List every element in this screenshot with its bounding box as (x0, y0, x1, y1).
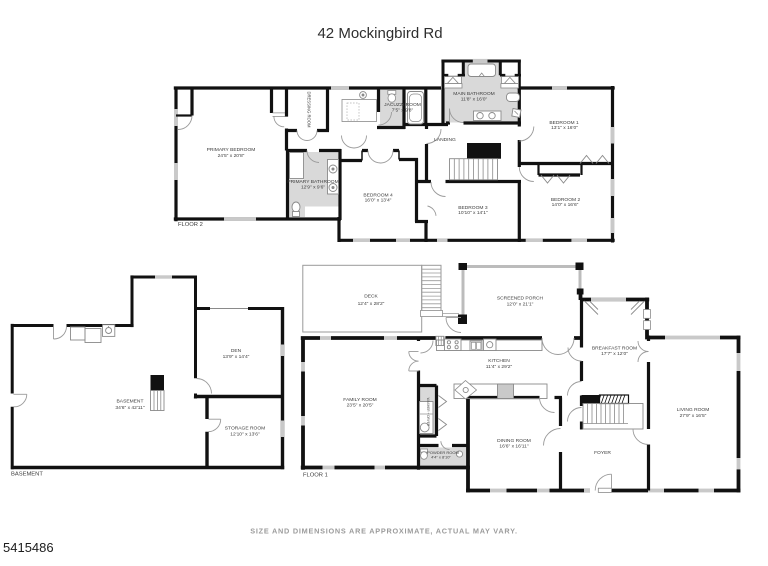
svg-text:14'0" x 16'6": 14'0" x 16'6" (552, 202, 579, 208)
svg-text:WASHER + DRYER: WASHER + DRYER (426, 398, 430, 427)
svg-text:FOYER: FOYER (594, 450, 611, 456)
svg-text:12'4" x 28'2": 12'4" x 28'2" (358, 301, 385, 307)
svg-text:BASEMENT: BASEMENT (11, 472, 43, 478)
svg-text:13'1" x 16'0": 13'1" x 16'0" (551, 125, 578, 131)
svg-text:PRIMARY BEDROOM: PRIMARY BEDROOM (207, 147, 256, 153)
svg-text:BEDROOM 2: BEDROOM 2 (551, 197, 581, 203)
svg-text:16'6" x 16'11": 16'6" x 16'11" (499, 443, 528, 449)
svg-text:12'0" x 21'1": 12'0" x 21'1" (507, 302, 534, 308)
svg-text:MAIN BATHROOM: MAIN BATHROOM (453, 91, 494, 97)
svg-text:DINING ROOM: DINING ROOM (497, 438, 531, 444)
svg-text:JACUZZI ROOM: JACUZZI ROOM (384, 102, 421, 108)
svg-text:27'9" x 16'5": 27'9" x 16'5" (680, 413, 707, 419)
svg-text:42 Mockingbird Rd: 42 Mockingbird Rd (317, 25, 442, 42)
svg-text:DRESSING ROOM: DRESSING ROOM (306, 91, 311, 128)
svg-text:KITCHEN: KITCHEN (488, 358, 510, 364)
svg-text:BEDROOM 3: BEDROOM 3 (458, 205, 488, 211)
svg-text:5415486: 5415486 (3, 540, 54, 555)
svg-text:34'6" x 42'11": 34'6" x 42'11" (115, 405, 144, 411)
svg-text:12'9" x 9'6": 12'9" x 9'6" (301, 184, 325, 190)
svg-text:BEDROOM 4: BEDROOM 4 (363, 192, 393, 198)
svg-text:FLOOR 1: FLOOR 1 (303, 473, 328, 479)
svg-text:DEN: DEN (231, 348, 242, 354)
svg-text:23'5" x 20'5": 23'5" x 20'5" (347, 403, 374, 409)
svg-text:BEDROOM 1: BEDROOM 1 (549, 120, 579, 126)
svg-text:SIZE AND DIMENSIONS ARE APPROX: SIZE AND DIMENSIONS ARE APPROXIMATE, ACT… (250, 527, 517, 536)
svg-text:12'10" x 13'6": 12'10" x 13'6" (230, 432, 260, 438)
svg-text:10'10" x 14'1": 10'10" x 14'1" (458, 210, 488, 216)
svg-text:17'7" x 12'0": 17'7" x 12'0" (601, 351, 628, 357)
svg-text:7'5" x 9'8": 7'5" x 9'8" (392, 108, 414, 114)
svg-text:STORAGE ROOM: STORAGE ROOM (225, 426, 265, 432)
svg-text:PRIMARY BATHROOM: PRIMARY BATHROOM (287, 179, 338, 185)
svg-text:24'5" x 20'8": 24'5" x 20'8" (218, 153, 245, 159)
svg-text:BASEMENT: BASEMENT (117, 399, 144, 405)
svg-text:DECK: DECK (364, 294, 378, 300)
svg-text:11'4" x 29'2": 11'4" x 29'2" (486, 364, 513, 370)
svg-text:FLOOR 2: FLOOR 2 (178, 222, 203, 228)
svg-text:11'8" x 16'0": 11'8" x 16'0" (461, 97, 488, 103)
svg-text:LIVING ROOM: LIVING ROOM (677, 407, 710, 413)
svg-text:LANDING: LANDING (434, 137, 456, 143)
svg-text:FAMILY ROOM: FAMILY ROOM (343, 397, 377, 403)
svg-text:BREAKFAST ROOM: BREAKFAST ROOM (592, 346, 637, 352)
svg-text:16'0" x 13'4": 16'0" x 13'4" (365, 198, 392, 204)
svg-text:4'4" x 8'10": 4'4" x 8'10" (431, 455, 451, 460)
svg-text:13'9" x 14'4": 13'9" x 14'4" (223, 354, 250, 360)
svg-text:SCREENED PORCH: SCREENED PORCH (497, 296, 544, 302)
